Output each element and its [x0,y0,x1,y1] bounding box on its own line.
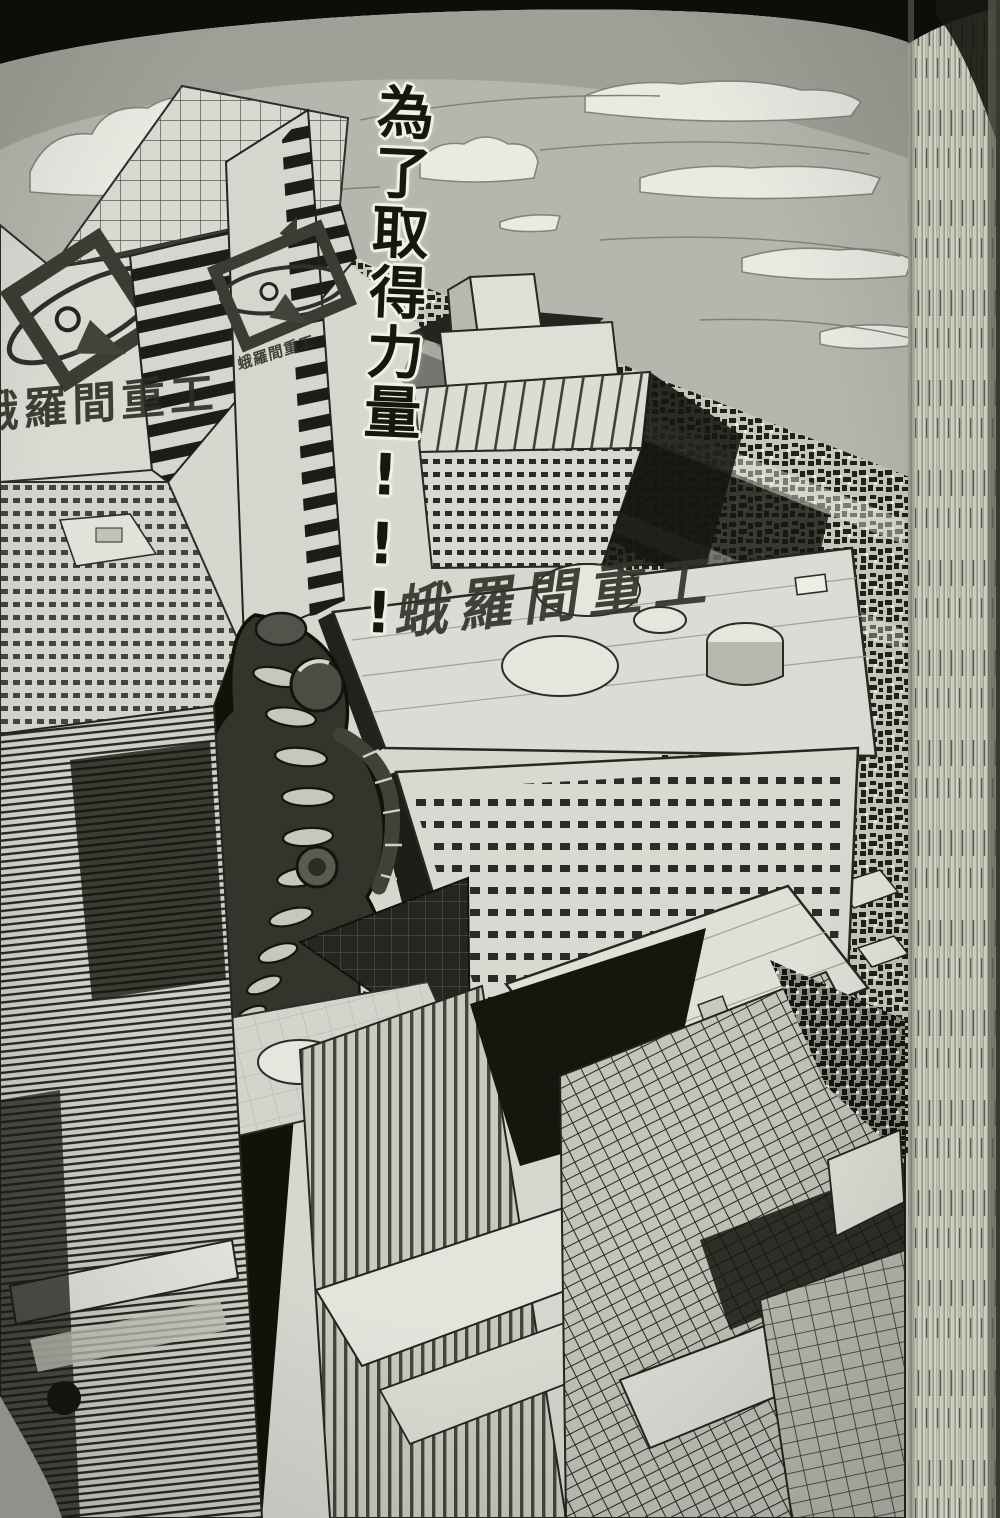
book-page-edges [908,0,1000,1518]
manga-artwork [0,0,1000,1518]
manga-page-photo: 為了取得力量!!! 蛾羅間重工 蛾羅間重工 蛾羅間重工 [0,0,1000,1518]
vignette [0,0,916,1518]
